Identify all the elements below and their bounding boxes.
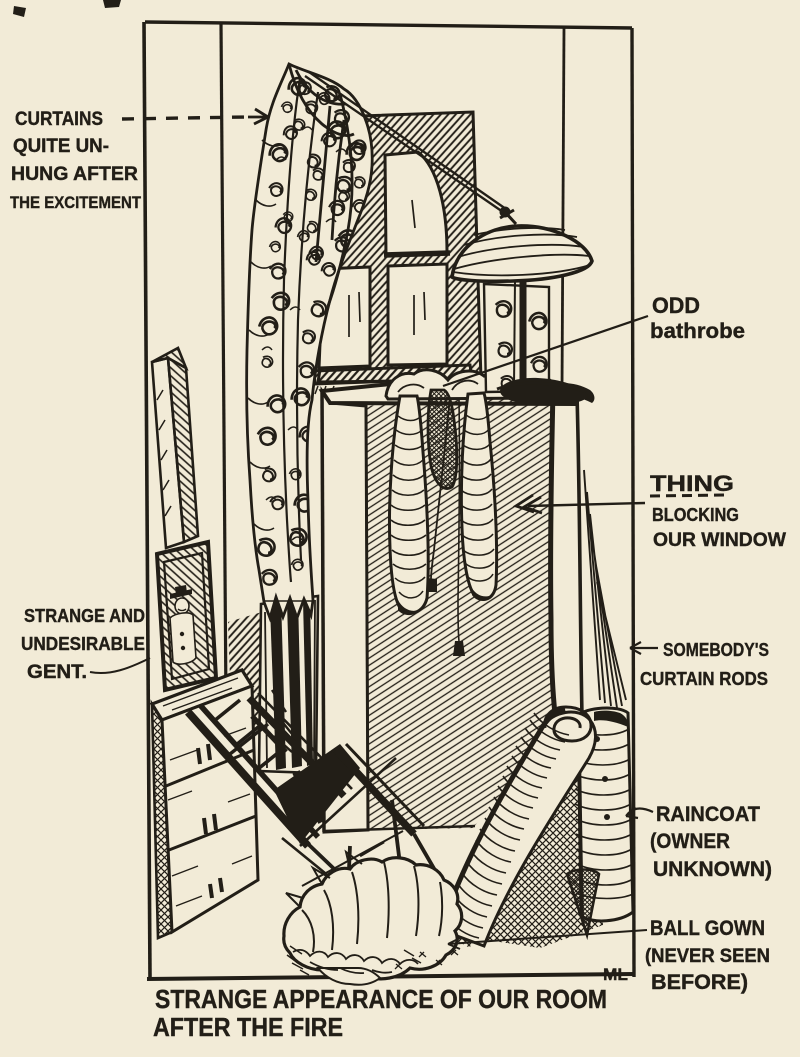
svg-text:SOMEBODY'S: SOMEBODY'S (663, 640, 769, 660)
svg-text:CURTAIN RODS: CURTAIN RODS (640, 669, 768, 689)
svg-text:THING: THING (650, 471, 734, 496)
svg-text:HUNG AFTER: HUNG AFTER (11, 164, 138, 185)
svg-text:THE EXCITEMENT: THE EXCITEMENT (10, 194, 141, 212)
svg-text:(NEVER SEEN: (NEVER SEEN (645, 946, 770, 967)
svg-text:GENT.: GENT. (27, 662, 87, 683)
svg-text:AFTER THE FIRE: AFTER THE FIRE (153, 1012, 343, 1042)
svg-text:ODD: ODD (652, 293, 700, 318)
svg-text:CURTAINS: CURTAINS (15, 109, 103, 130)
svg-text:UNKNOWN): UNKNOWN) (653, 858, 772, 881)
svg-text:BEFORE): BEFORE) (651, 971, 748, 994)
svg-text:QUITE UN-: QUITE UN- (13, 136, 109, 157)
svg-text:OUR WINDOW: OUR WINDOW (653, 530, 786, 551)
svg-text:ML: ML (603, 965, 628, 984)
svg-text:BLOCKING: BLOCKING (652, 505, 739, 525)
svg-text:RAINCOAT: RAINCOAT (656, 803, 760, 826)
svg-text:(OWNER: (OWNER (650, 830, 730, 853)
svg-text:STRANGE APPEARANCE OF OUR ROOM: STRANGE APPEARANCE OF OUR ROOM (155, 984, 607, 1014)
svg-text:BALL GOWN: BALL GOWN (650, 917, 765, 940)
svg-text:STRANGE AND: STRANGE AND (24, 606, 145, 626)
svg-text:bathrobe: bathrobe (650, 320, 745, 343)
svg-text:UNDESIRABLE: UNDESIRABLE (21, 634, 145, 654)
